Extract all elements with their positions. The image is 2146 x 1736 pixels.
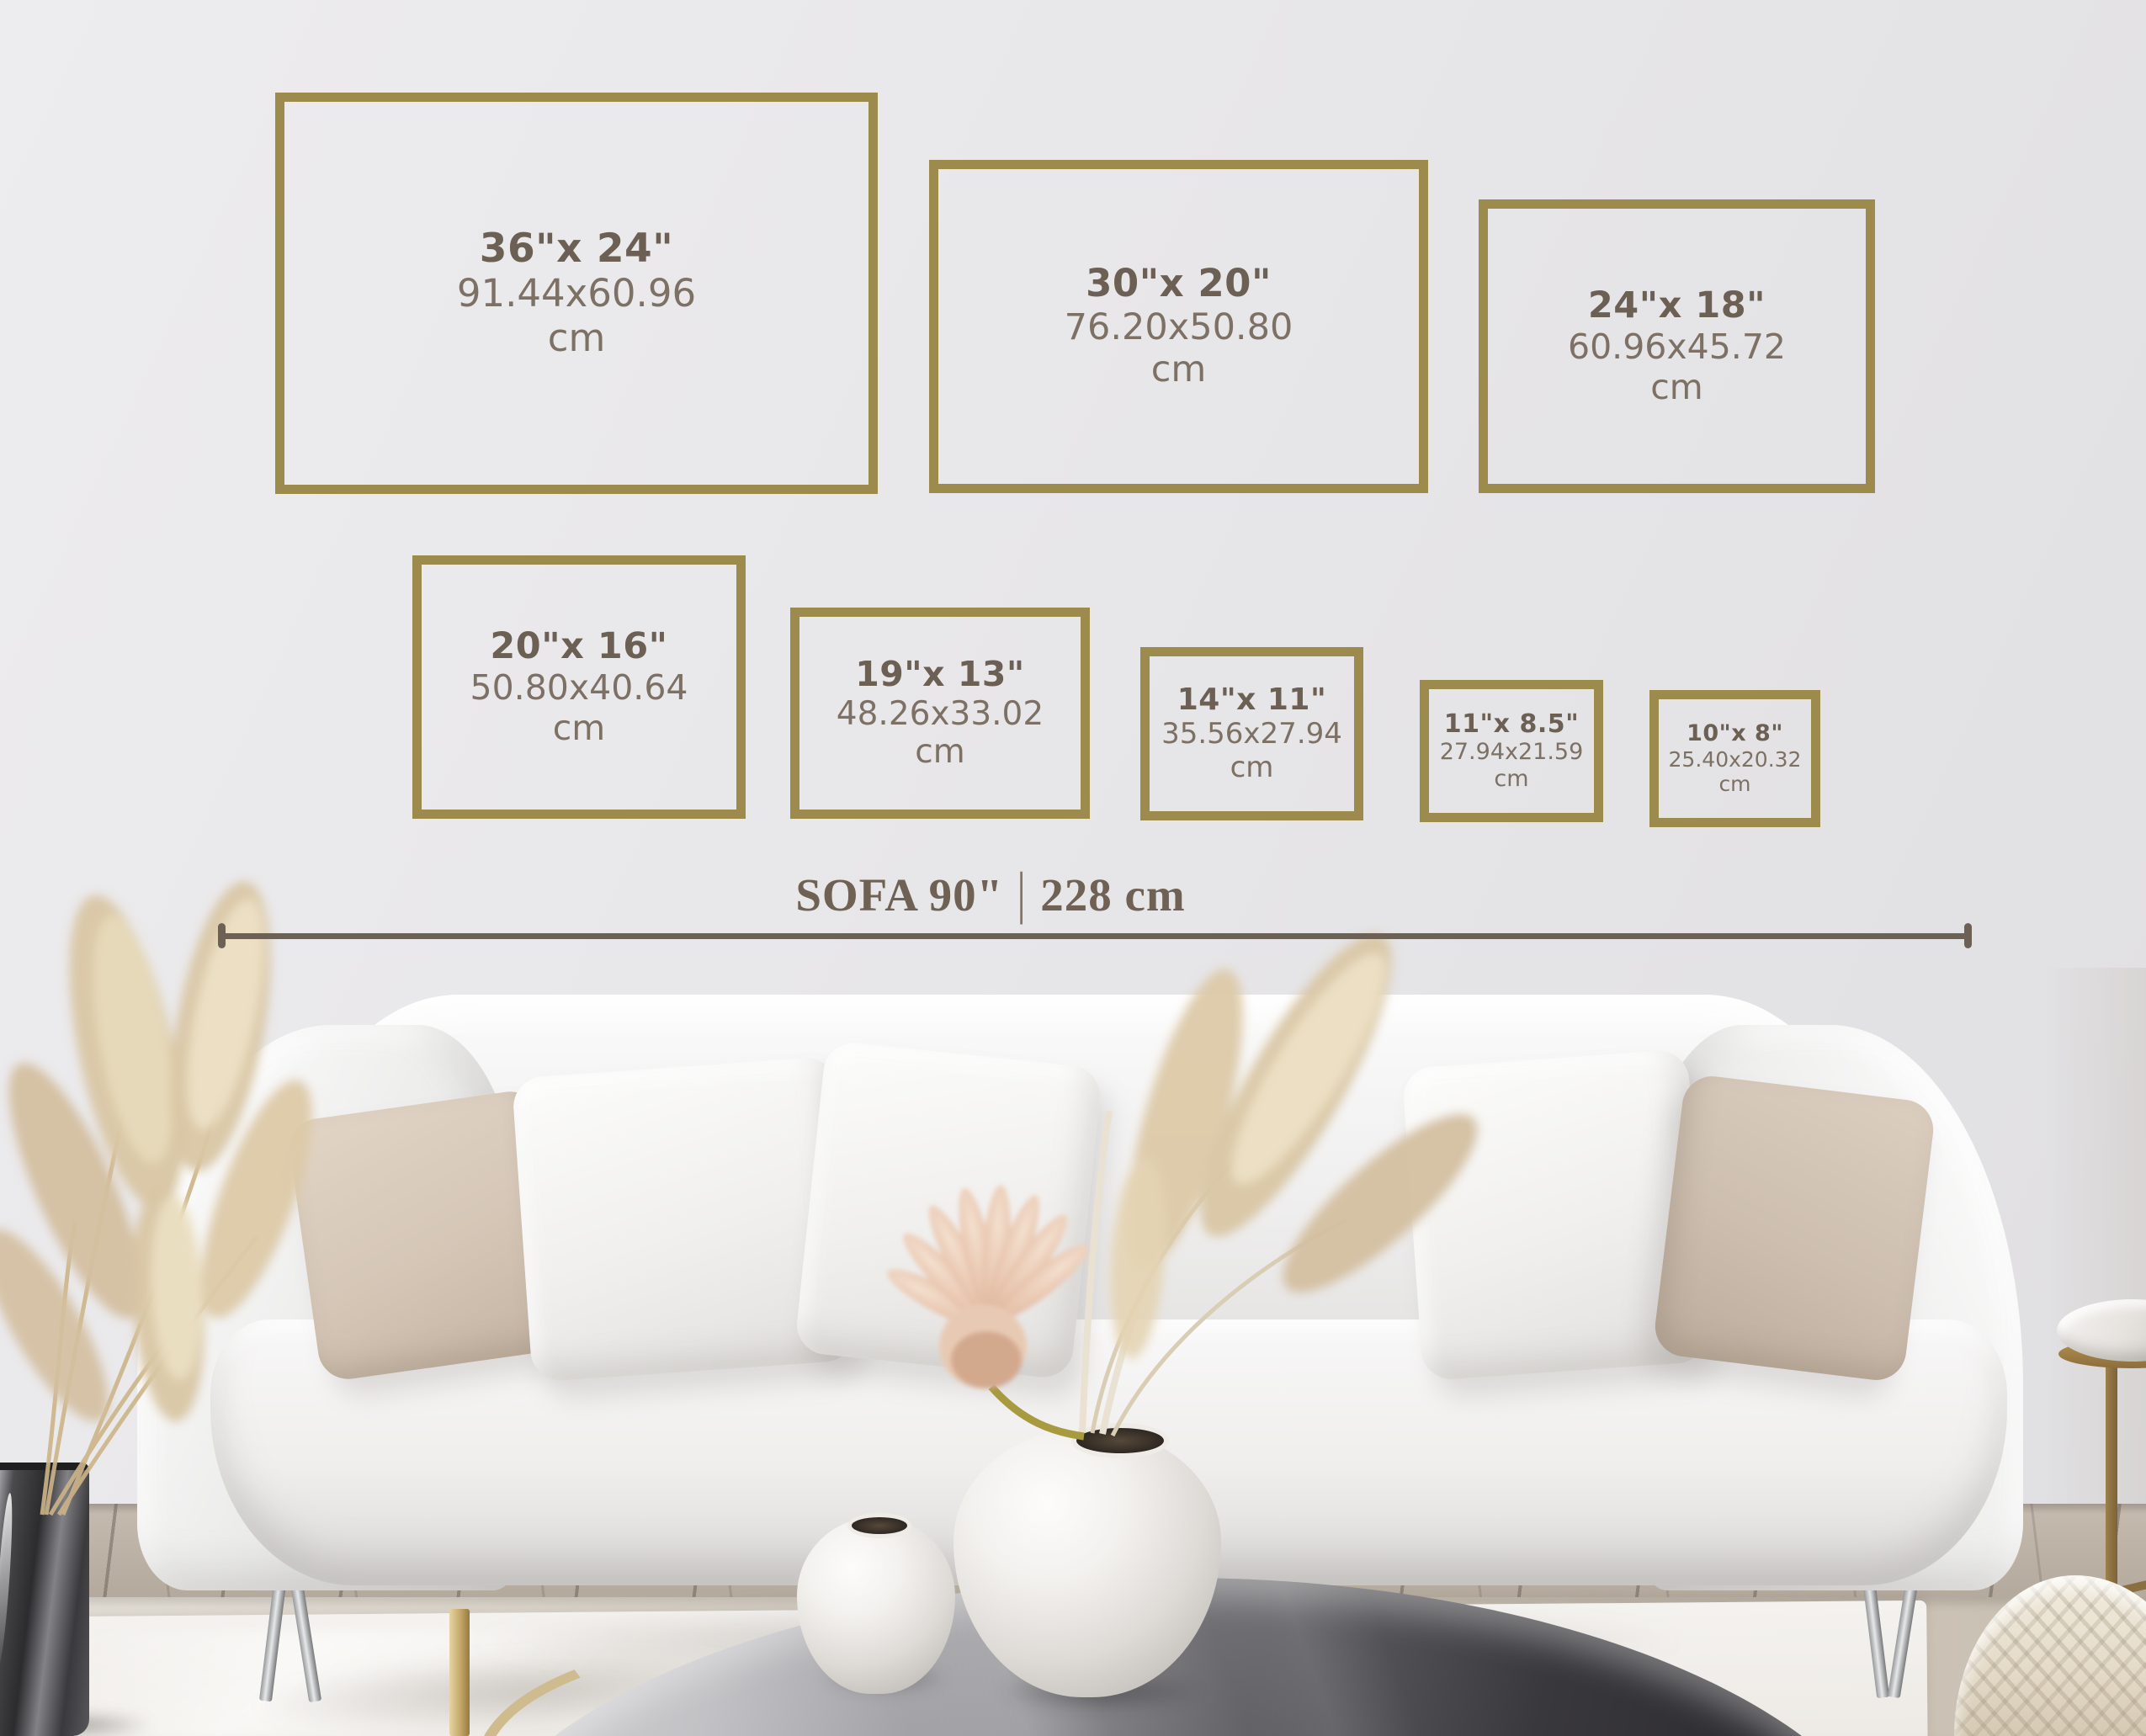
frame-label: 14"x 11" 35.56x27.94 cm bbox=[1161, 682, 1342, 785]
frame-size-inches: 11"x 8.5" bbox=[1440, 709, 1584, 739]
frame-size-unit: cm bbox=[1440, 766, 1584, 793]
sofa-width-metric: 228 cm bbox=[1040, 868, 1185, 921]
frame-size-inches: 19"x 13" bbox=[837, 655, 1044, 695]
frame-size-inches: 14"x 11" bbox=[1161, 682, 1342, 718]
side-table-leg bbox=[2106, 1362, 2117, 1599]
frame-10x8: 10"x 8" 25.40x20.32 cm bbox=[1649, 690, 1820, 827]
frame-label: 24"x 18" 60.96x45.72 cm bbox=[1568, 284, 1786, 407]
frame-size-unit: cm bbox=[1568, 368, 1786, 408]
frame-size-cm: 27.94x21.59 bbox=[1440, 739, 1584, 766]
sofa-measurement-line bbox=[220, 933, 1969, 939]
measurement-end-tick-left bbox=[218, 923, 226, 948]
frame-size-unit: cm bbox=[470, 709, 688, 749]
frame-11x8_5: 11"x 8.5" 27.94x21.59 cm bbox=[1420, 680, 1603, 822]
frame-label: 10"x 8" 25.40x20.32 cm bbox=[1669, 720, 1802, 796]
frame-label: 36"x 24" 91.44x60.96 cm bbox=[457, 226, 696, 360]
frame-size-inches: 36"x 24" bbox=[457, 226, 696, 272]
pampas-plumes-left bbox=[0, 874, 335, 1437]
frame-size-guide-mockup: SOFA 90" | 228 cm 36"x 24" 91.44x60.96 c… bbox=[0, 0, 2146, 1736]
frame-24x18: 24"x 18" 60.96x45.72 cm bbox=[1479, 199, 1875, 493]
frame-size-unit: cm bbox=[1065, 348, 1293, 390]
frame-size-cm: 60.96x45.72 bbox=[1568, 327, 1786, 368]
protea-flower bbox=[881, 1184, 1097, 1436]
frame-size-cm: 25.40x20.32 bbox=[1669, 747, 1802, 772]
frame-size-inches: 10"x 8" bbox=[1669, 720, 1802, 747]
frame-size-cm: 91.44x60.96 bbox=[457, 272, 696, 316]
frame-label: 19"x 13" 48.26x33.02 cm bbox=[837, 655, 1044, 772]
frame-36x24: 36"x 24" 91.44x60.96 cm bbox=[275, 93, 878, 494]
frame-19x13: 19"x 13" 48.26x33.02 cm bbox=[790, 608, 1090, 819]
pampas-plumes-center bbox=[1103, 912, 1500, 1360]
frame-size-unit: cm bbox=[457, 316, 696, 361]
frame-size-inches: 24"x 18" bbox=[1568, 284, 1786, 326]
frame-size-cm: 35.56x27.94 bbox=[1161, 718, 1342, 751]
frame-size-unit: cm bbox=[1161, 751, 1342, 785]
frame-30x20: 30"x 20" 76.20x50.80 cm bbox=[929, 160, 1428, 493]
sofa-measurement-label: SOFA 90" | 228 cm bbox=[713, 868, 1268, 921]
frame-14x11: 14"x 11" 35.56x27.94 cm bbox=[1140, 647, 1363, 820]
frame-size-inches: 20"x 16" bbox=[470, 625, 688, 667]
measurement-separator: | bbox=[1017, 860, 1027, 926]
measurement-end-tick-right bbox=[1964, 923, 1972, 948]
frame-size-unit: cm bbox=[1669, 772, 1802, 796]
sofa-width-imperial: SOFA 90" bbox=[795, 868, 1003, 921]
frame-size-cm: 50.80x40.64 bbox=[470, 668, 688, 709]
frame-size-inches: 30"x 20" bbox=[1065, 262, 1293, 306]
frame-20x16: 20"x 16" 50.80x40.64 cm bbox=[412, 555, 746, 819]
frame-label: 11"x 8.5" 27.94x21.59 cm bbox=[1440, 709, 1584, 792]
frame-label: 30"x 20" 76.20x50.80 cm bbox=[1065, 262, 1293, 390]
frame-label: 20"x 16" 50.80x40.64 cm bbox=[470, 625, 688, 748]
frame-size-unit: cm bbox=[837, 733, 1044, 772]
frame-size-cm: 76.20x50.80 bbox=[1065, 306, 1293, 348]
frame-size-cm: 48.26x33.02 bbox=[837, 695, 1044, 734]
